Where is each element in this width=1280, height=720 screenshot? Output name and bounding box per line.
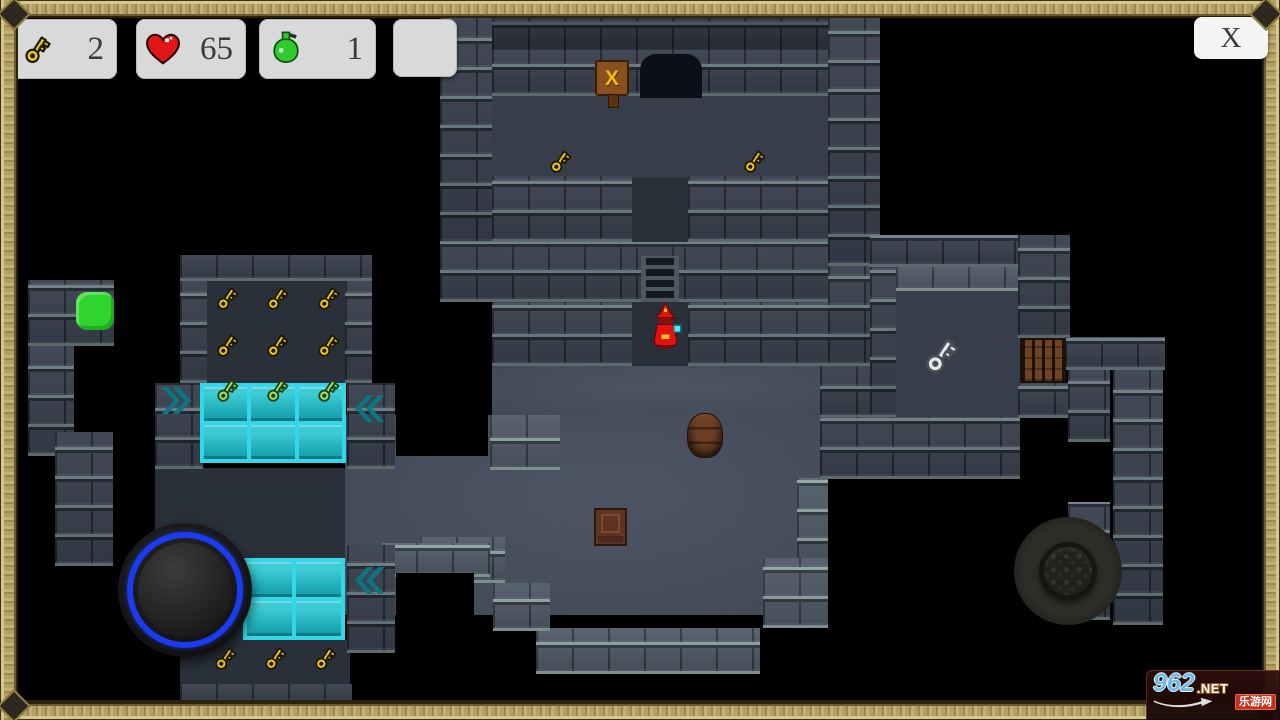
gold-key-sprite: [313, 330, 343, 360]
wall-segment: [345, 281, 372, 383]
glass-tile: [204, 425, 247, 459]
green-key-sprite: [262, 375, 292, 405]
frame-right: [1262, 0, 1280, 720]
sign-label: X: [605, 68, 619, 89]
heart-icon: [145, 31, 181, 67]
wall-segment: [820, 417, 1020, 479]
movement-joystick[interactable]: [118, 523, 252, 657]
chevron-right-sprite: [161, 387, 194, 414]
watermark-logo: 962 .NET: [1153, 672, 1276, 696]
action-button[interactable]: [1014, 517, 1122, 625]
wall-segment: [1113, 370, 1163, 625]
wall-segment: [688, 302, 828, 366]
glass-tile: [299, 425, 342, 459]
ladder-sprite: [641, 256, 679, 302]
glass-tile: [247, 562, 292, 597]
gold-key-sprite: [739, 146, 769, 176]
frame-top: [0, 0, 1280, 18]
floor: [492, 96, 828, 182]
chevron-left-sprite: [352, 395, 385, 422]
potion-count: 1: [347, 33, 364, 66]
sign-sprite: X: [595, 60, 629, 96]
wall-segment: [493, 583, 550, 631]
void: [396, 400, 488, 456]
wall-segment: [380, 543, 490, 577]
wall-segment: [1065, 337, 1165, 370]
watermark-site: 962: [1153, 672, 1195, 696]
doorway-sprite: [640, 54, 702, 98]
gold-key-sprite: [212, 283, 242, 313]
chevron-left-sprite: [352, 567, 385, 594]
gold-key-sprite: [313, 283, 343, 313]
wall-segment: [828, 18, 880, 266]
floor: [632, 178, 688, 244]
key-icon: [19, 31, 55, 67]
empty-slot-panel[interactable]: [393, 19, 457, 77]
floor: [492, 366, 820, 418]
wall-segment: [180, 255, 372, 281]
gold-key-sprite: [212, 330, 242, 360]
tiles-sprite: [243, 558, 345, 640]
wall-segment: [688, 176, 828, 242]
health-count: 65: [200, 33, 233, 66]
wall-segment: [896, 267, 1018, 291]
keys-count: 2: [88, 33, 105, 66]
frame-bottom: [0, 700, 1280, 720]
wall-segment: [180, 281, 207, 383]
wall-segment: [1068, 370, 1110, 442]
wizard-sprite: [649, 302, 682, 350]
action-button-pad: [1039, 542, 1097, 600]
glass-tile: [296, 601, 341, 636]
wall-segment: [492, 302, 632, 366]
wall-segment: [492, 176, 632, 242]
gold-key-sprite: [262, 283, 292, 313]
gate-sprite: [1020, 338, 1066, 383]
glass-tile: [296, 562, 341, 597]
wall-segment: [1018, 383, 1070, 418]
potion-panel[interactable]: 1: [259, 19, 376, 79]
glass-tile: [251, 425, 294, 459]
wall-segment: [870, 267, 896, 418]
silver-key-sprite: [918, 330, 964, 380]
wall-segment: [55, 432, 113, 566]
wall-segment: [440, 242, 636, 302]
void: [396, 573, 474, 630]
joystick-knob[interactable]: [138, 543, 232, 637]
green-key-sprite: [313, 375, 343, 405]
keys-panel: 2: [10, 19, 117, 79]
chest-sprite: [594, 508, 627, 546]
wall-segment: [347, 545, 395, 653]
wall-segment: [536, 628, 760, 674]
gold-key-sprite: [310, 643, 340, 673]
green-key-sprite: [212, 375, 242, 405]
swoosh-arrow-icon: [1153, 696, 1215, 708]
watermark: 962 .NET 乐游网: [1146, 670, 1280, 720]
wall-segment: [684, 242, 828, 302]
gold-key-sprite: [260, 643, 290, 673]
wall-segment: [763, 558, 828, 628]
gold-key-sprite: [262, 330, 292, 360]
wall-segment: [797, 478, 828, 570]
wall-segment: [1018, 235, 1070, 338]
glass-tile: [247, 601, 292, 636]
game-screen: X 2 65 1 X 962 .NET: [0, 0, 1280, 720]
close-button[interactable]: X: [1194, 17, 1268, 59]
wall-segment: [490, 415, 560, 470]
green-slime-sprite: [76, 292, 114, 330]
health-panel: 65: [136, 19, 246, 79]
barrel-sprite: [687, 413, 723, 458]
frame-left: [0, 0, 18, 720]
watermark-domain: .NET: [1197, 681, 1229, 696]
watermark-site-name: 乐游网: [1235, 694, 1276, 710]
gold-key-sprite: [545, 146, 575, 176]
potion-icon: [268, 31, 304, 67]
wall-segment: [492, 18, 828, 54]
